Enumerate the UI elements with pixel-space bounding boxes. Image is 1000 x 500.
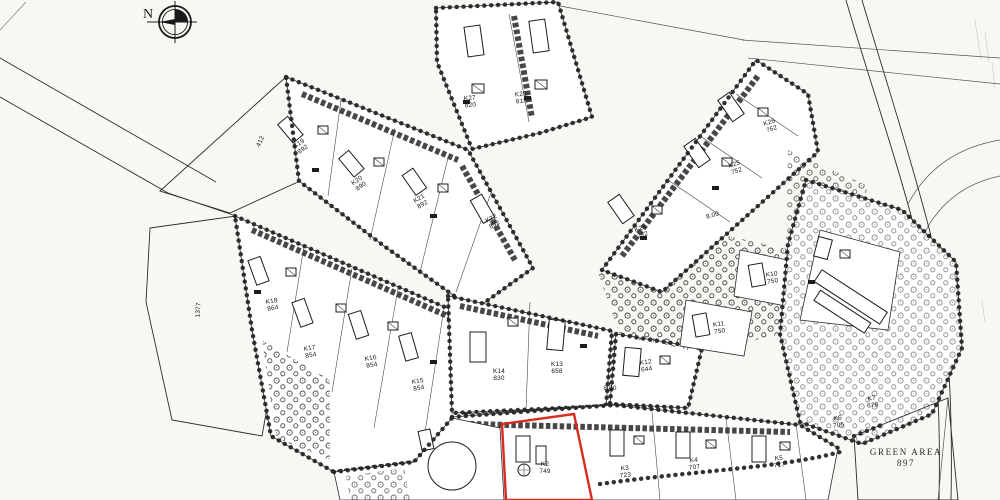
plot-area-number: 717: [774, 461, 786, 469]
plot-label-k14: K14 830: [493, 368, 505, 382]
plot-label-k27: K27 820: [464, 94, 477, 109]
plot-label-k10: K10 750: [765, 270, 779, 286]
plot-code: K2: [541, 461, 549, 468]
plot-code: K13: [551, 361, 563, 368]
site-plan-scan: 412 1377: [0, 0, 1000, 500]
green-area-number: 897: [897, 458, 915, 468]
plot-area-number: 723: [620, 471, 632, 479]
green-area-name: GREEN AREA: [870, 447, 942, 457]
parcel-number: 1377: [195, 302, 203, 318]
plot-area-number: 820: [465, 101, 477, 109]
dimension-8-00-b: 8.00: [603, 385, 616, 392]
plot-label-k12: K12 644: [639, 358, 653, 374]
site-plan-canvas: 412 1377: [0, 0, 1000, 500]
plot-area-number: 707: [689, 463, 701, 471]
plot-label-k11: K11 750: [713, 320, 727, 335]
plot-code: K14: [493, 368, 505, 375]
dimension-text: 8.00: [603, 385, 616, 392]
plot-area-number: 749: [539, 468, 551, 475]
parcel-1377-label: 1377: [195, 302, 203, 318]
plot-area-number: 830: [493, 375, 505, 382]
plot-label-k28: K28 818: [515, 90, 528, 105]
plot-label-k13: K13 658: [551, 361, 563, 375]
north-label: N: [143, 7, 153, 22]
plot-area-number: 818: [516, 97, 528, 105]
plot-area-number: 658: [551, 368, 563, 375]
